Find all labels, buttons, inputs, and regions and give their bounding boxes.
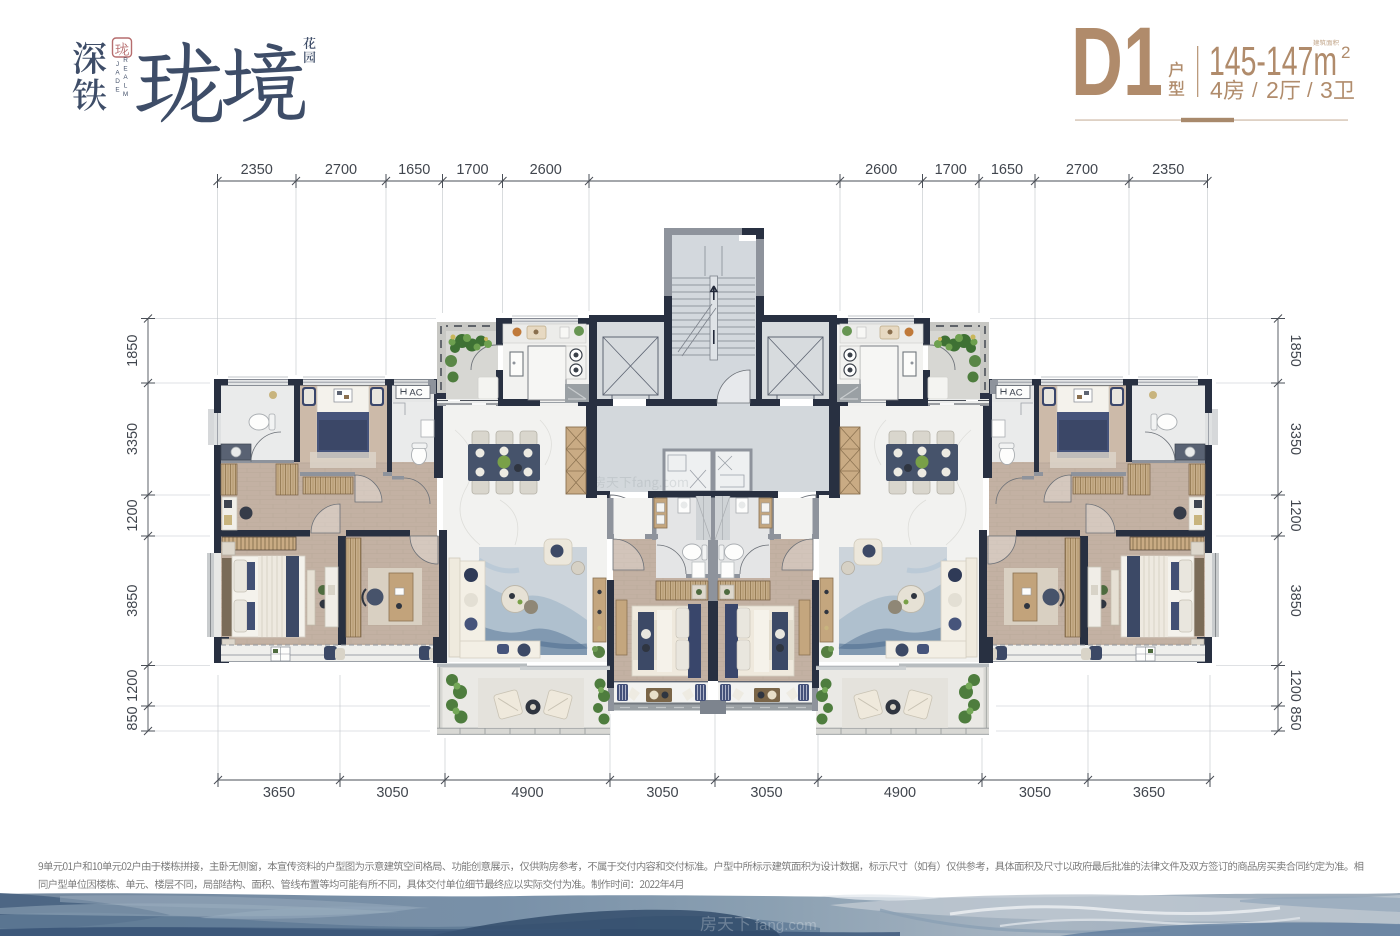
svg-text:3350: 3350 [125,423,141,455]
svg-text:AC: AC [409,388,422,399]
svg-text:D1: D1 [1071,7,1163,116]
svg-text:/: / [1252,80,1258,102]
svg-text:R: R [123,57,128,64]
svg-text:3050: 3050 [376,785,408,801]
svg-text:E: E [123,66,127,73]
svg-text:2700: 2700 [325,162,357,178]
svg-text:850: 850 [125,706,141,730]
svg-text:1200: 1200 [125,670,141,702]
svg-text:1850: 1850 [1287,335,1303,367]
svg-text:3050: 3050 [1019,785,1051,801]
svg-text:1700: 1700 [456,162,488,178]
svg-text:2: 2 [1266,77,1279,103]
svg-text:3850: 3850 [1287,585,1303,617]
svg-text:M: M [123,91,128,98]
svg-text:1850: 1850 [125,335,141,367]
svg-text:3650: 3650 [263,785,295,801]
svg-text:4: 4 [1210,77,1223,103]
svg-text:/: / [1307,80,1313,102]
svg-text:2700: 2700 [1066,162,1098,178]
svg-text:D: D [115,78,120,85]
svg-text:2: 2 [1341,43,1350,62]
svg-text:1650: 1650 [991,162,1023,178]
svg-text:3: 3 [1320,77,1333,103]
svg-text:2350: 2350 [1152,162,1184,178]
svg-text:2600: 2600 [530,162,562,178]
svg-text:3350: 3350 [1287,423,1303,455]
svg-text:1700: 1700 [935,162,967,178]
svg-text:L: L [124,83,128,90]
svg-text:3050: 3050 [750,785,782,801]
svg-text:1200: 1200 [1287,670,1303,702]
svg-text:3050: 3050 [646,785,678,801]
svg-text:fang.com: fang.com [755,917,817,934]
svg-text:A: A [123,74,128,81]
svg-text:3650: 3650 [1133,785,1165,801]
svg-text:2600: 2600 [865,162,897,178]
svg-text:1200: 1200 [125,499,141,531]
svg-text:E: E [115,87,119,94]
svg-text:3850: 3850 [125,585,141,617]
svg-text:1650: 1650 [398,162,430,178]
svg-text:4900: 4900 [884,785,916,801]
svg-text:4900: 4900 [511,785,543,801]
svg-text:A: A [115,70,120,77]
svg-text:1200: 1200 [1287,499,1303,531]
svg-text:AC: AC [1009,388,1022,399]
svg-text:J: J [116,61,119,68]
svg-text:2350: 2350 [241,162,273,178]
svg-text:850: 850 [1287,706,1303,730]
